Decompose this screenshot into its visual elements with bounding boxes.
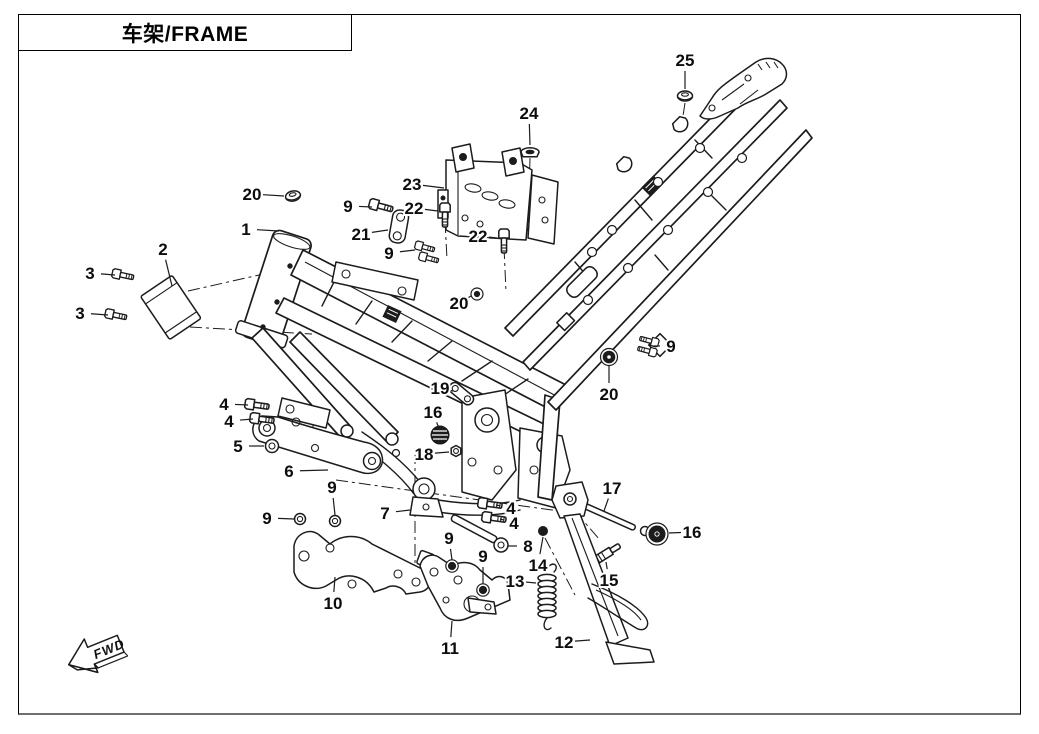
callout-number: 8 xyxy=(523,537,532,556)
callout-3: 3 xyxy=(85,264,115,283)
callout-22: 22 xyxy=(405,199,438,218)
callout-9: 9 xyxy=(384,244,415,263)
callout-25: 25 xyxy=(676,51,695,89)
callout-number: 20 xyxy=(243,185,262,204)
callout-number: 4 xyxy=(509,514,519,533)
callout-number: 22 xyxy=(405,199,424,218)
callout-8: 8 xyxy=(508,537,533,556)
callout-number: 12 xyxy=(555,633,574,652)
leader-line xyxy=(606,562,607,569)
leader-line xyxy=(423,185,444,188)
callout-12: 12 xyxy=(555,633,590,652)
callout-9: 9 xyxy=(262,509,294,528)
leader-line xyxy=(496,505,500,506)
leader-line xyxy=(425,209,438,211)
callout-9: 9 xyxy=(343,197,372,216)
callout-number: 3 xyxy=(85,264,94,283)
callout-24: 24 xyxy=(520,104,539,145)
leader-line xyxy=(451,390,453,391)
leader-line xyxy=(278,518,294,519)
callout-9: 9 xyxy=(444,529,453,560)
callout-number: 6 xyxy=(284,462,293,481)
callout-number: 1 xyxy=(241,220,250,239)
callout-20: 20 xyxy=(243,185,284,204)
leader-line xyxy=(359,206,372,207)
callout-number: 23 xyxy=(403,175,422,194)
fwd-arrow: FWD xyxy=(62,626,131,682)
callout-number: 20 xyxy=(600,385,619,404)
callout-number: 4 xyxy=(224,412,234,431)
leader-line xyxy=(437,422,438,426)
leader-line xyxy=(333,498,335,515)
callout-number: 21 xyxy=(352,225,371,244)
callout-16: 16 xyxy=(669,523,701,542)
callout-number: 5 xyxy=(233,437,242,456)
leader-line xyxy=(489,237,497,238)
leader-line xyxy=(451,621,452,637)
callout-number: 9 xyxy=(384,244,393,263)
leader-line xyxy=(575,640,590,641)
callout-number: 25 xyxy=(676,51,695,70)
leader-line xyxy=(450,549,452,560)
callout-number: 7 xyxy=(380,504,389,523)
callout-7: 7 xyxy=(380,504,410,523)
leader-line xyxy=(540,537,543,554)
leader-line xyxy=(372,230,388,232)
battery-bracket-art xyxy=(438,144,558,244)
callout-17: 17 xyxy=(603,479,622,511)
callout-number: 2 xyxy=(158,240,167,259)
leader-line xyxy=(669,532,681,533)
callout-number: 3 xyxy=(75,304,84,323)
callout-4: 4 xyxy=(224,412,253,431)
callout-number: 22 xyxy=(469,227,488,246)
callout-3: 3 xyxy=(75,304,108,323)
callout-number: 15 xyxy=(600,571,619,590)
callout-number: 13 xyxy=(506,572,525,591)
callout-number: 9 xyxy=(478,547,487,566)
callout-15: 15 xyxy=(600,562,619,590)
callout-number: 18 xyxy=(415,445,434,464)
callout-20: 20 xyxy=(600,366,619,404)
leader-line xyxy=(604,498,608,511)
callout-number: 19 xyxy=(431,379,450,398)
leader-line xyxy=(529,124,530,145)
leader-line xyxy=(257,230,279,231)
callout-number: 16 xyxy=(424,403,443,422)
subframe-art xyxy=(505,80,812,410)
leader-line xyxy=(235,404,248,405)
callout-number: 14 xyxy=(529,556,548,575)
callout-number: 9 xyxy=(262,509,271,528)
callout-number: 9 xyxy=(444,529,453,548)
callout-20: 20 xyxy=(450,294,471,313)
callout-number: 9 xyxy=(327,478,336,497)
leader-line xyxy=(396,510,410,512)
callout-9: 9 xyxy=(327,478,336,515)
leader-line xyxy=(300,470,328,471)
leader-line xyxy=(435,452,449,453)
parts-diagram-page: 车架/FRAME xyxy=(0,0,1039,734)
callout-number: 20 xyxy=(450,294,469,313)
leader-line xyxy=(526,582,536,583)
callout-number: 9 xyxy=(343,197,352,216)
leader-line xyxy=(400,250,415,252)
callout-number: 24 xyxy=(520,104,539,123)
callout-6: 6 xyxy=(284,462,328,481)
callout-number: 9 xyxy=(666,337,675,356)
callout-number: 11 xyxy=(441,639,459,658)
callout-number: 10 xyxy=(324,594,343,613)
callout-number: 17 xyxy=(603,479,622,498)
callout-21: 21 xyxy=(352,225,388,244)
callout-number: 16 xyxy=(683,523,702,542)
leader-line xyxy=(263,195,284,196)
callout-18: 18 xyxy=(415,445,449,464)
frame-exploded-diagram: 2524232092212122923320920191618445699744… xyxy=(0,0,1039,734)
leader-line xyxy=(469,296,471,297)
callout-11: 11 xyxy=(441,621,459,658)
callout-16: 16 xyxy=(424,403,443,426)
